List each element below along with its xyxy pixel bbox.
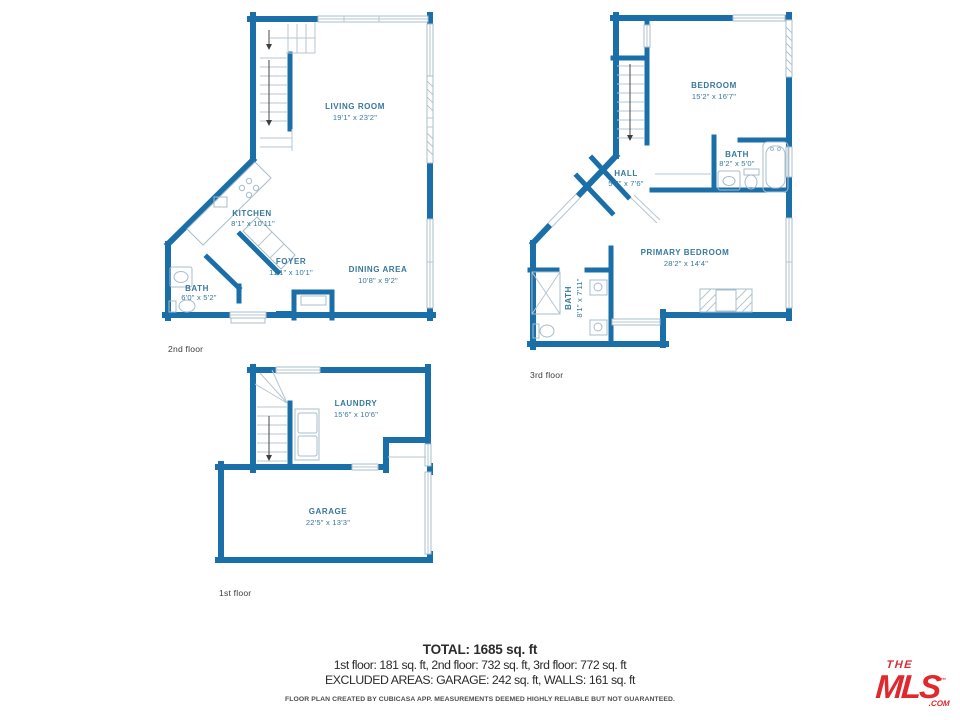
- excluded-areas: EXCLUDED AREAS: GARAGE: 242 sq. ft, WALL…: [0, 673, 960, 687]
- room-dims-garage: 22'5" x 13'3": [306, 518, 350, 527]
- room-dims-bath-3rd: 8'2" x 5'0": [719, 159, 755, 168]
- room-dims-hall: 5'7" x 7'6": [608, 179, 644, 188]
- room-label-dining-area: DINING AREA: [349, 265, 408, 274]
- floor-label-2nd: 2nd floor: [168, 344, 203, 354]
- floor-plan-page: LIVING ROOM 19'1" x 23'2" KITCHEN 8'1" x…: [0, 0, 960, 720]
- stairs-1st-floor: [255, 370, 287, 461]
- room-label-primary-bath: BATH: [564, 286, 573, 310]
- room-dims-dining-area: 10'8" x 9'2": [358, 276, 398, 285]
- room-dims-living-room: 19'1" x 23'2": [333, 113, 377, 122]
- room-label-bedroom: BEDROOM: [691, 81, 737, 90]
- floor-plan-1st-floor: LAUNDRY 15'6" x 10'6" GARAGE 22'5" x 13'…: [218, 367, 431, 598]
- disclaimer: FLOOR PLAN CREATED BY CUBICASA APP. MEAS…: [0, 696, 960, 703]
- floor-label-1st: 1st floor: [219, 588, 251, 598]
- room-label-bath-3rd: BATH: [725, 150, 749, 159]
- room-label-bath-2nd: BATH: [185, 284, 209, 293]
- room-dims-primary-bath: 8'1" x 7'11": [575, 278, 584, 317]
- room-label-kitchen: KITCHEN: [232, 209, 271, 218]
- floor-areas: 1st floor: 181 sq. ft, 2nd floor: 732 sq…: [0, 658, 960, 672]
- floor-plan-drawing: LIVING ROOM 19'1" x 23'2" KITCHEN 8'1" x…: [0, 0, 960, 720]
- room-dims-foyer: 11'1" x 10'1": [269, 268, 313, 277]
- room-label-living-room: LIVING ROOM: [325, 102, 385, 111]
- room-label-laundry: LAUNDRY: [335, 399, 378, 408]
- area-summary: TOTAL: 1685 sq. ft 1st floor: 181 sq. ft…: [0, 642, 960, 703]
- logo-trademark: ™: [940, 678, 946, 684]
- windows-3rd-floor: [548, 15, 792, 325]
- room-label-primary-bedroom: PRIMARY BEDROOM: [641, 248, 730, 257]
- room-dims-bath-2nd: 6'0" x 5'2": [181, 293, 217, 302]
- floor-plan-2nd-floor: LIVING ROOM 19'1" x 23'2" KITCHEN 8'1" x…: [165, 15, 433, 354]
- room-label-foyer: FOYER: [276, 257, 306, 266]
- room-dims-kitchen: 8'1" x 10'11": [231, 219, 275, 228]
- themls-logo: THE MLS™ .COM: [874, 660, 953, 708]
- room-label-garage: GARAGE: [309, 507, 348, 516]
- room-dims-bedroom: 15'2" x 16'7": [692, 92, 736, 101]
- floor-label-3rd: 3rd floor: [530, 370, 563, 380]
- total-area: TOTAL: 1685 sq. ft: [0, 642, 960, 657]
- room-dims-primary-bedroom: 28'2" x 14'4": [664, 259, 708, 268]
- walls-1st-floor: [218, 367, 430, 560]
- room-label-hall: HALL: [614, 169, 638, 178]
- floor-plan-3rd-floor: BEDROOM 15'2" x 16'7" BATH 8'2" x 5'0" H…: [530, 15, 792, 380]
- room-dims-laundry: 15'6" x 10'6": [334, 410, 378, 419]
- stairs-3rd-floor: [617, 64, 644, 141]
